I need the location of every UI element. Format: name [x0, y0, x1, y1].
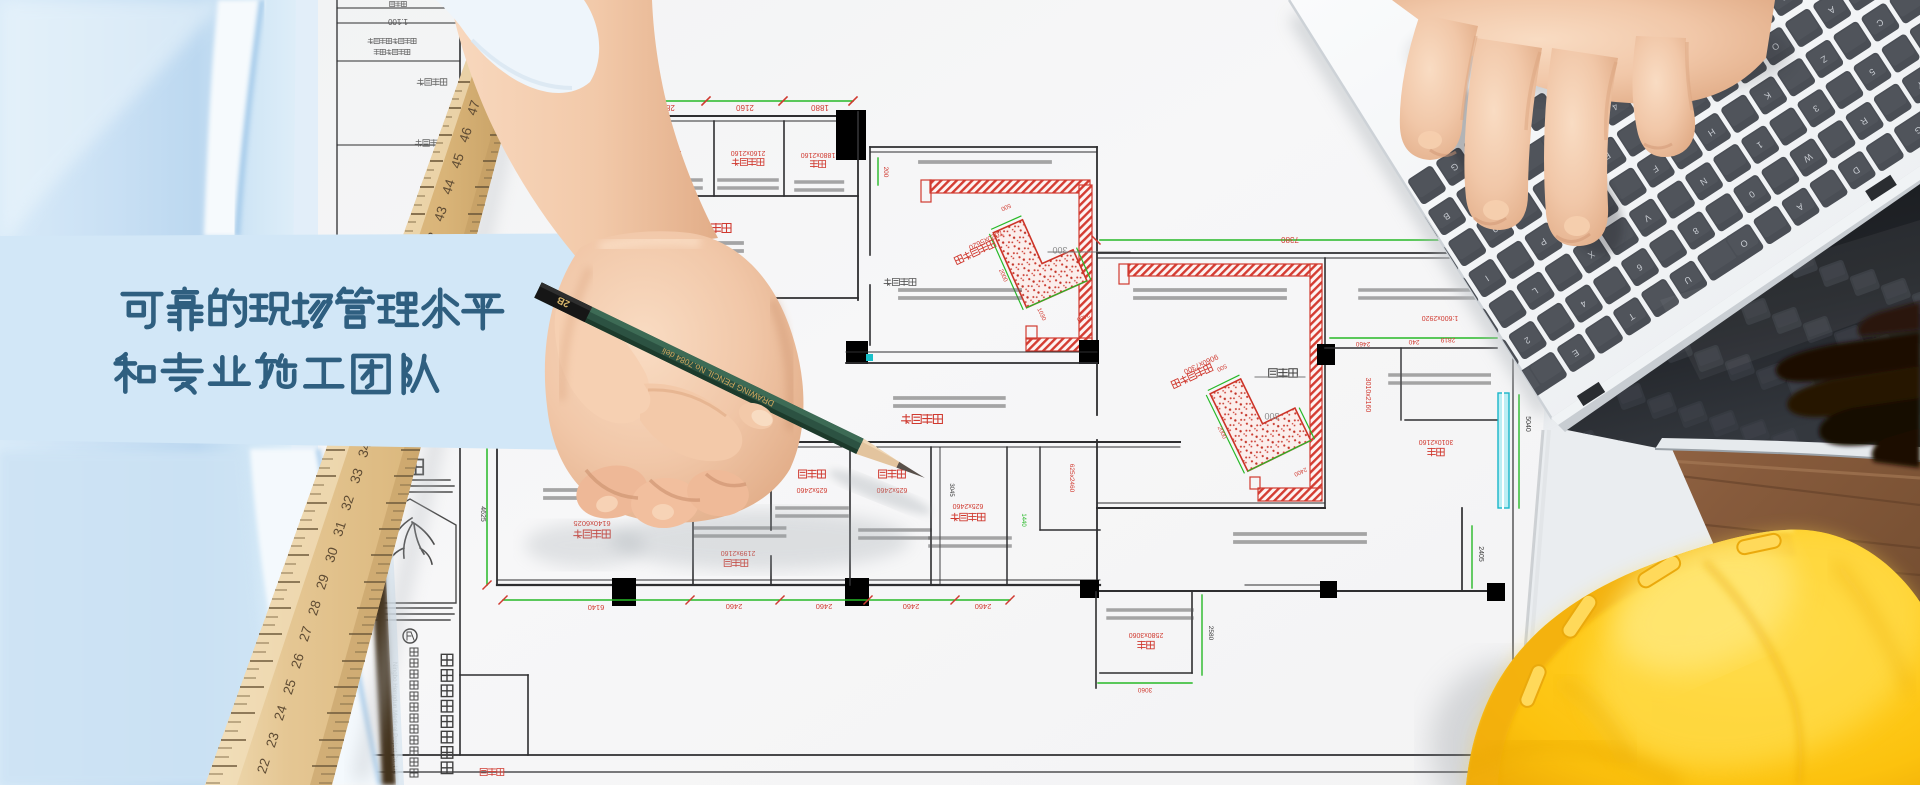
svg-text:625x2460: 625x2460	[1068, 464, 1075, 493]
svg-text:2460: 2460	[726, 602, 743, 611]
svg-text:4625: 4625	[479, 506, 486, 522]
svg-text:2160: 2160	[736, 103, 754, 112]
svg-text:5040: 5040	[1524, 416, 1531, 432]
svg-text:3010x2160: 3010x2160	[1419, 438, 1454, 445]
svg-text:2460: 2460	[903, 602, 920, 611]
svg-text:3045: 3045	[948, 483, 954, 497]
svg-text:6140: 6140	[588, 603, 605, 612]
svg-text:2160x2160: 2160x2160	[731, 149, 766, 156]
svg-text:300: 300	[1264, 411, 1279, 421]
svg-text:3010x2160: 3010x2160	[1364, 378, 1371, 413]
svg-text:1:100: 1:100	[387, 17, 408, 26]
svg-text:1880: 1880	[811, 103, 829, 112]
svg-text:240: 240	[1408, 338, 1419, 345]
svg-text:1440: 1440	[1020, 513, 1026, 527]
svg-text:2460: 2460	[975, 602, 992, 611]
svg-text:2405: 2405	[1477, 546, 1484, 562]
svg-text:2580: 2580	[1207, 626, 1214, 641]
svg-text:200: 200	[882, 167, 889, 178]
svg-text:2460: 2460	[816, 602, 833, 611]
svg-text:1:600x2920: 1:600x2920	[1422, 314, 1459, 321]
svg-text:2819: 2819	[1440, 336, 1455, 343]
svg-text:625x2460: 625x2460	[797, 486, 828, 493]
svg-text:1880x2160: 1880x2160	[801, 151, 836, 158]
svg-text:300: 300	[1052, 245, 1067, 255]
svg-text:3060: 3060	[1137, 686, 1152, 693]
svg-text:2460: 2460	[1355, 340, 1370, 347]
svg-text:2580x3060: 2580x3060	[1129, 631, 1164, 638]
svg-text:7380: 7380	[1281, 235, 1299, 244]
svg-text:625x2460: 625x2460	[953, 502, 984, 509]
